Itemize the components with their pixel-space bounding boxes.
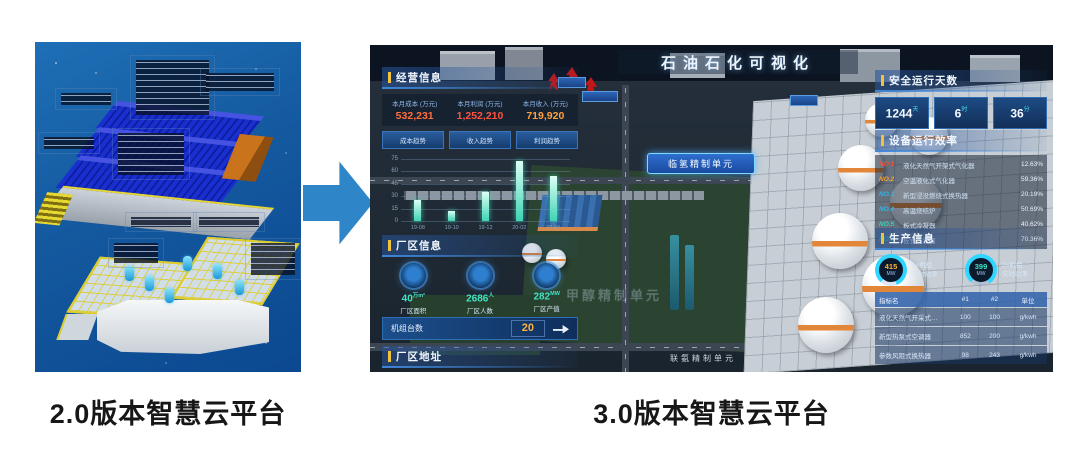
scene-label-hydrazine-unit: 联氨精制单元 xyxy=(670,353,736,364)
business-metric: 本月利润 (万元)1,252,210 xyxy=(449,98,510,122)
equipment-rank: NO.2 xyxy=(879,176,899,183)
panel-title: 生产信息 xyxy=(889,231,935,246)
gauge-label-line: 1#机组 xyxy=(912,261,938,270)
stat-value: 2686人 xyxy=(449,291,512,304)
stat-icon xyxy=(468,263,493,288)
plant-stats: 40万m²厂区面积2686人厂区人数282MW厂区产值 xyxy=(382,263,578,315)
bar-rect xyxy=(414,200,421,221)
table-row: 液化天然气开采式…100100g/kwh xyxy=(875,308,1047,326)
chart-bar xyxy=(448,159,456,221)
metric-label: 本月收入 (万元) xyxy=(515,98,576,108)
background-stars xyxy=(55,62,57,64)
safety-unit: 天 xyxy=(912,107,918,113)
production-info-panel: 生产信息 415MW1#机组实时功率399MW2#机组实时功率 指标名#1#2单… xyxy=(875,228,1047,364)
efficiency-row: NO.2空温液化式气化器59.36% xyxy=(879,172,1043,187)
plant-address-panel: 厂区地址 xyxy=(382,346,578,367)
safety-value: 1244 xyxy=(886,106,913,120)
panel-header: 经营信息 xyxy=(382,67,578,88)
v3-dashboard-screenshot: 石油石化可视化 临氢精制单元 联氨精制单元 甲醇精制单元 经营信息 本月成本 (… xyxy=(370,45,1053,372)
dashboard-title: 石油石化可视化 xyxy=(618,50,858,74)
equipment-name: 液化天然气开架式气化器 xyxy=(903,160,1017,170)
header-accent-bar xyxy=(881,233,884,244)
metric-value: 719,920 xyxy=(515,110,576,122)
chart-ytick-label: 30 xyxy=(384,193,398,199)
chart-ytick-label: 15 xyxy=(384,206,398,212)
scene-label-chip xyxy=(582,91,618,102)
gauge-label-line: 2#机组 xyxy=(1002,261,1028,270)
safety-value: 36 xyxy=(1010,106,1023,120)
chart-xtick-label: 20-02 xyxy=(512,225,526,231)
panel-header: 安全运行天数 xyxy=(875,70,1047,91)
stat-value: 282MW xyxy=(515,291,578,302)
plant-info-panel: 厂区信息 40万m²厂区面积2686人厂区人数282MW厂区产值 xyxy=(382,235,578,315)
cyan-cylinder xyxy=(213,264,222,279)
stat-value: 40万m² xyxy=(382,291,445,304)
metric-label: 本月成本 (万元) xyxy=(384,98,445,108)
data-tooltip xyxy=(200,68,280,96)
table-cell: 液化天然气开采式… xyxy=(875,312,951,322)
stat-label: 厂区人数 xyxy=(449,305,512,315)
v3-caption: 3.0版本智慧云平台 xyxy=(370,392,1053,431)
scene-column xyxy=(670,235,679,310)
gauge-label-line: 实时功率 xyxy=(1002,270,1028,279)
turbine-icon xyxy=(553,324,569,334)
storage-tank xyxy=(798,297,854,353)
plant-stat: 40万m²厂区面积 xyxy=(382,263,445,315)
chart-bar xyxy=(549,159,557,221)
safety-unit: 时 xyxy=(961,107,967,113)
table-cell: 200 xyxy=(980,333,1009,340)
plant-stat: 2686人厂区人数 xyxy=(449,263,512,315)
power-gauges: 415MW1#机组实时功率399MW2#机组实时功率 xyxy=(875,254,1047,286)
gauge-value: 415 xyxy=(885,263,898,271)
equipment-efficiency-value: 12.63% xyxy=(1021,161,1043,168)
cyan-cylinder xyxy=(125,266,134,281)
table-cell: 243 xyxy=(980,352,1009,359)
bar-rect xyxy=(516,161,523,221)
panel-header: 厂区地址 xyxy=(382,346,578,367)
data-tooltip xyxy=(55,88,117,110)
header-accent-bar xyxy=(388,72,391,83)
table-header-row: 指标名#1#2单位 xyxy=(875,292,1047,307)
concrete-structure xyxy=(97,300,269,354)
bar-rect xyxy=(550,176,557,221)
stat-label: 厂区面积 xyxy=(382,305,445,315)
table-row: 参数风阻式换热器98243g/kwh xyxy=(875,346,1047,364)
equipment-name: 高温烧结炉 xyxy=(903,205,1017,215)
plant-stat: 282MW厂区产值 xyxy=(515,263,578,315)
chart-ytick-label: 45 xyxy=(384,181,398,187)
trend-tab-button[interactable]: 收入趋势 xyxy=(449,131,511,149)
equipment-rank: NO.4 xyxy=(879,206,899,213)
table-header-cell: 指标名 xyxy=(875,295,951,305)
chart-xtick-label: 19-08 xyxy=(411,225,425,231)
cyan-cylinder xyxy=(145,276,154,291)
panel-title: 设备运行效率 xyxy=(889,133,958,148)
chart-bar xyxy=(515,159,523,221)
cyan-cylinder xyxy=(165,288,174,303)
safety-counter: 36分 xyxy=(993,97,1047,129)
cyan-cylinder xyxy=(183,256,192,271)
efficiency-row: NO.1液化天然气开架式气化器12.63% xyxy=(879,157,1043,172)
transition-arrow-icon xyxy=(303,158,373,248)
equipment-rank: NO.5 xyxy=(879,221,899,228)
gauge-label: 2#机组实时功率 xyxy=(1002,261,1028,279)
chart-xtick-label: 19-10 xyxy=(445,225,459,231)
comparison-figure: 石油石化可视化 临氢精制单元 联氨精制单元 甲醇精制单元 经营信息 本月成本 (… xyxy=(0,0,1080,458)
gauge-center: 415MW xyxy=(879,258,903,282)
table-cell: g/kwh xyxy=(1009,314,1047,321)
v2-platform-screenshot xyxy=(35,42,301,372)
business-metric: 本月成本 (万元)532,231 xyxy=(384,98,445,122)
panel-header: 厂区信息 xyxy=(382,235,578,256)
stat-label: 厂区产值 xyxy=(515,303,578,313)
scene-column xyxy=(685,245,694,310)
data-tooltip xyxy=(108,238,164,268)
table-row: 新型热泵式空调器852200g/kwh xyxy=(875,327,1047,345)
equipment-name: 新型浸没燃烧式换热器 xyxy=(903,190,1017,200)
data-tooltip xyxy=(193,212,265,232)
safety-unit: 分 xyxy=(1024,107,1030,113)
stat-unit: 人 xyxy=(488,293,494,299)
metric-label: 本月利润 (万元) xyxy=(449,98,510,108)
table-header-cell: #1 xyxy=(951,296,980,303)
equipment-efficiency-value: 50.69% xyxy=(1021,206,1043,213)
table-header-cell: #2 xyxy=(980,296,1009,303)
bar-rect xyxy=(482,192,489,221)
storage-tank xyxy=(812,213,868,269)
stat-unit: 万m² xyxy=(413,293,425,299)
stairs xyxy=(56,314,97,340)
safety-counter: 6时 xyxy=(934,97,988,129)
equipment-name: 空温液化式气化器 xyxy=(903,175,1017,185)
scene-label-methanol-unit: 甲醇精制单元 xyxy=(566,285,662,304)
unit-count-label: 机组台数 xyxy=(391,323,423,334)
v2-caption: 2.0版本智慧云平台 xyxy=(35,392,301,431)
data-tooltip xyxy=(245,238,301,280)
header-accent-bar xyxy=(388,351,391,362)
safety-counters: 1244天6时36分 xyxy=(875,97,1047,129)
panel-title: 经营信息 xyxy=(396,70,442,85)
chart-xtick-label: 20-04 xyxy=(546,225,560,231)
stat-unit: MW xyxy=(550,291,560,297)
scene-label-chip xyxy=(790,95,818,106)
gauge-unit: MW xyxy=(887,271,896,277)
table-cell: 参数风阻式换热器 xyxy=(875,350,951,360)
table-cell: 98 xyxy=(951,352,980,359)
efficiency-row: NO.3新型浸没燃烧式换热器20.19% xyxy=(879,187,1043,202)
chart-ytick-label: 60 xyxy=(384,168,398,174)
gauge-ring: 415MW xyxy=(875,254,907,286)
power-gauge: 399MW2#机组实时功率 xyxy=(965,254,1047,286)
trend-tab-button[interactable]: 成本趋势 xyxy=(382,131,444,149)
header-accent-bar xyxy=(881,135,884,146)
business-info-panel: 经营信息 本月成本 (万元)532,231本月利润 (万元)1,252,210本… xyxy=(382,67,578,149)
metric-value: 1,252,210 xyxy=(449,110,510,122)
chart-plot-area: 75604530150 xyxy=(401,159,570,221)
scene-road xyxy=(622,85,629,372)
unit-count-value: 20 xyxy=(511,320,545,337)
panel-header: 设备运行效率 xyxy=(875,130,1047,151)
header-accent-bar xyxy=(388,240,391,251)
table-cell: 852 xyxy=(951,333,980,340)
chart-ytick-label: 75 xyxy=(384,156,398,162)
table-cell: 100 xyxy=(951,314,980,321)
safety-counter: 1244天 xyxy=(875,97,929,129)
data-tooltip xyxy=(38,132,100,154)
metric-value: 532,231 xyxy=(384,110,445,122)
chart-xtick-label: 19-12 xyxy=(478,225,492,231)
equipment-efficiency-value: 40.62% xyxy=(1021,221,1043,228)
chart-x-axis: 19-0819-1019-1220-0220-04 xyxy=(401,225,570,231)
stat-icon xyxy=(401,263,426,288)
gauge-center: 399MW xyxy=(969,258,993,282)
safety-days-panel: 安全运行天数 1244天6时36分 xyxy=(875,70,1047,129)
unit-count-row: 机组台数 20 xyxy=(382,317,578,340)
panel-title: 厂区地址 xyxy=(396,349,442,364)
header-accent-bar xyxy=(881,75,884,86)
gauge-label-line: 实时功率 xyxy=(912,270,938,279)
table-cell: 100 xyxy=(980,314,1009,321)
gauge-label: 1#机组实时功率 xyxy=(912,261,938,279)
gauge-ring: 399MW xyxy=(965,254,997,286)
trend-tab-button[interactable]: 利润趋势 xyxy=(516,131,578,149)
scene-label-hydro-unit[interactable]: 临氢精制单元 xyxy=(647,153,755,174)
table-cell: 新型热泵式空调器 xyxy=(875,331,951,341)
gauge-value: 399 xyxy=(975,263,988,271)
chart-bars xyxy=(401,159,570,221)
chart-bar xyxy=(481,159,489,221)
chart-gridline: 0 xyxy=(401,221,570,222)
panel-header: 生产信息 xyxy=(875,228,1047,249)
gauge-unit: MW xyxy=(977,271,986,277)
efficiency-row: NO.4高温烧结炉50.69% xyxy=(879,202,1043,217)
cyan-cylinder xyxy=(235,280,244,295)
data-tooltip xyxy=(112,128,190,180)
power-gauge: 415MW1#机组实时功率 xyxy=(875,254,957,286)
business-metric: 本月收入 (万元)719,920 xyxy=(515,98,576,122)
stat-icon xyxy=(534,263,559,288)
table-header-cell: 单位 xyxy=(1009,295,1047,305)
data-tooltip xyxy=(125,212,197,232)
business-metrics: 本月成本 (万元)532,231本月利润 (万元)1,252,210本月收入 (… xyxy=(382,94,578,126)
equipment-efficiency-value: 20.19% xyxy=(1021,191,1043,198)
panel-title: 安全运行天数 xyxy=(889,73,958,88)
trend-tabs: 成本趋势收入趋势利润趋势 xyxy=(382,131,578,149)
panel-title: 厂区信息 xyxy=(396,238,442,253)
equipment-rank: NO.3 xyxy=(879,191,899,198)
bar-rect xyxy=(448,211,455,221)
chart-ytick-label: 0 xyxy=(384,218,398,224)
equipment-efficiency-value: 59.36% xyxy=(1021,176,1043,183)
table-cell: g/kwh xyxy=(1009,352,1047,359)
indicator-table: 指标名#1#2单位液化天然气开采式…100100g/kwh新型热泵式空调器852… xyxy=(875,292,1047,364)
chart-bar xyxy=(414,159,422,221)
equipment-rank: NO.1 xyxy=(879,161,899,168)
table-cell: g/kwh xyxy=(1009,333,1047,340)
